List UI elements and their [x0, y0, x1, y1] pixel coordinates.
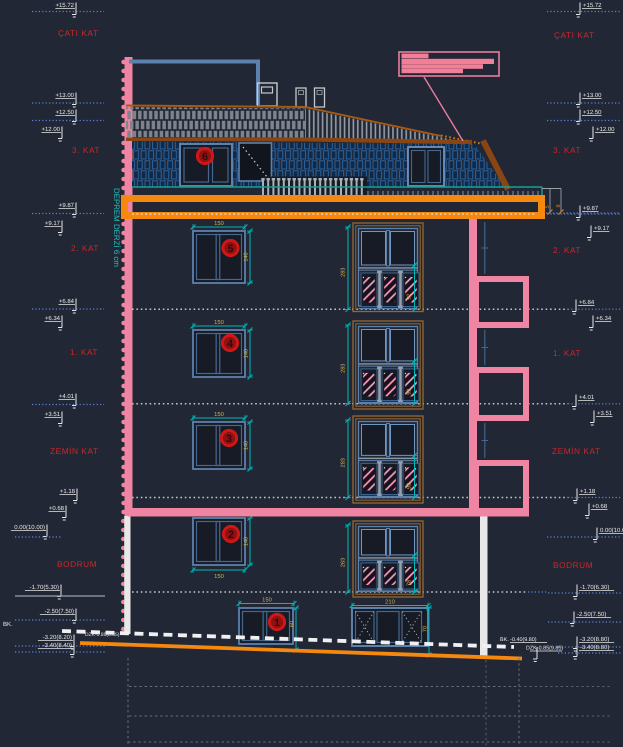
svg-text:-2.50(7.50): -2.50(7.50): [577, 611, 606, 618]
svg-text:0.00(10.00): 0.00(10.00): [14, 524, 45, 531]
svg-text:ÇATI KAT: ÇATI KAT: [58, 28, 99, 38]
svg-text:-3.40(8.80): -3.40(8.80): [580, 644, 609, 651]
svg-text:283: 283: [341, 458, 347, 467]
svg-text:+3.51: +3.51: [597, 410, 613, 417]
svg-text:150: 150: [214, 411, 224, 418]
svg-text:+3.51: +3.51: [45, 411, 61, 418]
svg-text:BK. -0.40(9.80): BK. -0.40(9.80): [500, 637, 537, 643]
svg-text:78: 78: [407, 580, 413, 586]
svg-text:+1.18: +1.18: [60, 488, 76, 495]
svg-text:+9.17: +9.17: [594, 225, 610, 232]
svg-text:140: 140: [244, 537, 250, 546]
svg-text:+4.01: +4.01: [579, 394, 595, 401]
svg-text:+6.34: +6.34: [596, 315, 612, 322]
svg-text:+12.50: +12.50: [583, 109, 602, 116]
svg-text:+1.18: +1.18: [580, 488, 596, 495]
svg-text:1: 1: [274, 617, 280, 629]
svg-text:+12.00: +12.00: [41, 126, 60, 133]
svg-text:-1.70(5.30): -1.70(5.30): [30, 584, 59, 591]
svg-text:0.00(10.00): 0.00(10.00): [600, 527, 623, 534]
svg-text:-3.20(8.80): -3.20(8.80): [580, 636, 609, 643]
svg-text:70: 70: [423, 626, 429, 632]
svg-text:+13.00: +13.00: [55, 92, 74, 99]
svg-text:-1.70(6.30): -1.70(6.30): [580, 584, 609, 591]
svg-text:3. KAT: 3. KAT: [72, 145, 100, 155]
svg-text:263: 263: [341, 558, 347, 567]
svg-text:BK.: BK.: [3, 621, 13, 628]
svg-text:DZK-0.85(9.85): DZK-0.85(9.85): [526, 646, 563, 652]
svg-text:150: 150: [214, 573, 224, 580]
svg-text:-2.50(7.50): -2.50(7.50): [45, 608, 74, 615]
svg-text:92: 92: [407, 389, 413, 395]
svg-text:-3.40(8.40): -3.40(8.40): [43, 642, 72, 649]
svg-text:+9.87: +9.87: [583, 205, 599, 212]
svg-text:283: 283: [341, 364, 347, 373]
svg-text:60: 60: [290, 621, 296, 627]
svg-text:DZK-0.85(8.85): DZK-0.85(8.85): [85, 632, 120, 638]
svg-text:+0.68: +0.68: [49, 505, 65, 512]
svg-text:150: 150: [214, 220, 224, 227]
svg-text:210: 210: [385, 599, 395, 606]
svg-text:4: 4: [227, 338, 233, 350]
svg-text:92: 92: [407, 483, 413, 489]
svg-text:+9.87: +9.87: [59, 202, 75, 209]
svg-text:+6.34: +6.34: [45, 315, 61, 322]
svg-text:1. KAT: 1. KAT: [553, 348, 581, 358]
svg-text:+4.01: +4.01: [59, 393, 75, 400]
svg-text:6: 6: [202, 151, 208, 163]
svg-text:2. KAT: 2. KAT: [553, 245, 581, 255]
svg-text:5: 5: [545, 205, 551, 208]
svg-text:92: 92: [407, 294, 413, 300]
svg-text:3. KAT: 3. KAT: [553, 145, 581, 155]
svg-text:2. KAT: 2. KAT: [71, 243, 99, 253]
svg-text:DEPREM DERZİ 6 cm: DEPREM DERZİ 6 cm: [112, 188, 121, 267]
svg-text:ZEMİN KAT: ZEMİN KAT: [552, 446, 601, 456]
svg-text:140: 140: [244, 441, 250, 450]
svg-text:BODRUM: BODRUM: [57, 559, 97, 569]
svg-text:8: 8: [556, 204, 562, 207]
svg-text:+15.72: +15.72: [55, 2, 74, 9]
svg-text:ZEMİN KAT: ZEMİN KAT: [50, 446, 99, 456]
svg-text:+6.84: +6.84: [59, 298, 75, 305]
svg-text:150: 150: [262, 597, 272, 604]
svg-text:140: 140: [244, 252, 250, 261]
svg-text:+6.84: +6.84: [579, 299, 595, 306]
svg-text:140: 140: [244, 349, 250, 358]
svg-text:3: 3: [226, 433, 232, 445]
svg-text:+9.17: +9.17: [45, 220, 61, 227]
svg-text:150: 150: [214, 319, 224, 326]
svg-text:-3.20(8.20): -3.20(8.20): [43, 634, 72, 641]
svg-text:+12.00: +12.00: [596, 126, 615, 133]
svg-text:BODRUM: BODRUM: [553, 560, 593, 570]
svg-text:+13.00: +13.00: [583, 92, 602, 99]
svg-text:+12.50: +12.50: [55, 109, 74, 116]
svg-text:2: 2: [228, 529, 234, 541]
svg-text:ÇATI KAT: ÇATI KAT: [554, 30, 595, 40]
svg-text:1. KAT: 1. KAT: [70, 347, 98, 357]
svg-text:283: 283: [341, 268, 347, 277]
svg-text:+15.72: +15.72: [583, 2, 602, 9]
svg-text:5: 5: [228, 243, 234, 255]
svg-text:+0.68: +0.68: [592, 503, 608, 510]
